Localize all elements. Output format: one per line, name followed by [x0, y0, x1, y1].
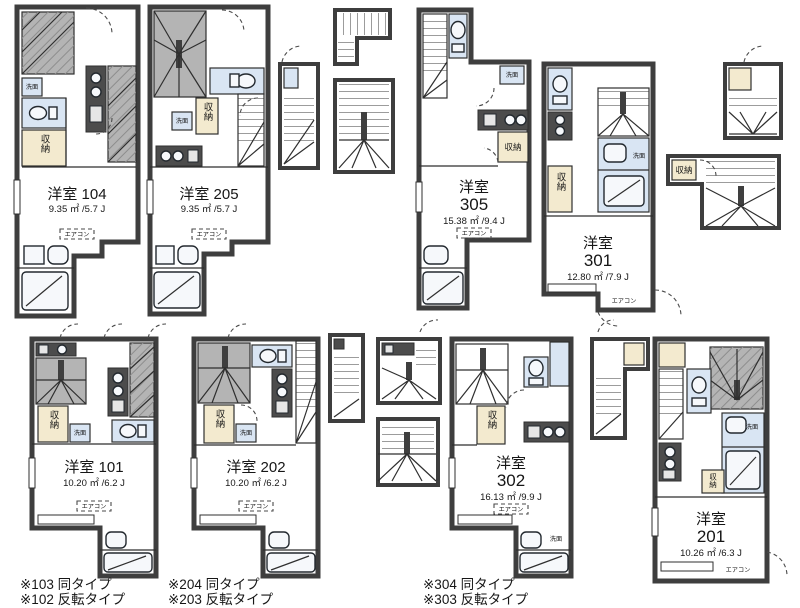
closet: 収納 [22, 130, 66, 166]
toilet [22, 98, 66, 128]
washer-icon [156, 246, 174, 264]
washstand-label: 洗面 [240, 429, 252, 437]
basin-icon [424, 246, 448, 264]
note-line: ※303 反転タイプ [423, 592, 529, 607]
svg-text:エアコン: エアコン [244, 504, 269, 511]
sink-icon [90, 106, 102, 122]
toilet [449, 14, 467, 58]
closet-label: 収納 [708, 473, 717, 490]
kitchen [548, 112, 572, 140]
staircase [423, 14, 447, 98]
washstand-label: 洗面 [26, 83, 38, 91]
basin-icon [48, 246, 68, 264]
room-number: 201 [697, 527, 725, 546]
washstand: 洗面 [236, 424, 256, 442]
staircase [22, 12, 74, 74]
toilet [252, 345, 292, 367]
closet: 収納 [204, 405, 234, 443]
staircase [238, 94, 264, 166]
room-label: 洋室 104 9.35 ㎡ /5.7 J [47, 186, 106, 215]
balcony-sill [38, 515, 94, 524]
stair-fragment [592, 339, 648, 438]
bath-unit: 洗面 [598, 138, 649, 212]
bathtub [104, 553, 152, 572]
svg-text:エアコン: エアコン [65, 232, 90, 239]
basin-icon [106, 532, 126, 548]
stair-fragment: 収納 [668, 156, 779, 228]
unit-301: 洗面 収納 洋室 301 12.80 ㎡ /7.9 J エアコン [544, 64, 653, 310]
stair-fragment [330, 335, 363, 421]
burner-icon [555, 427, 565, 437]
washstand: 洗面 [500, 66, 524, 84]
window [416, 182, 422, 212]
kitchen [478, 110, 528, 130]
svg-text:エアコン: エアコン [612, 298, 637, 305]
closet: 収納 [498, 132, 528, 162]
room-label: 洋室 101 10.20 ㎡ /6.2 J [63, 459, 125, 489]
svg-text:エアコン: エアコン [462, 231, 487, 238]
room-title: 洋室 [696, 511, 726, 528]
sink-icon [528, 426, 540, 438]
room-area: 10.26 ㎡ /6.3 J [680, 548, 742, 559]
room-area: 15.38 ㎡ /9.4 J [443, 216, 505, 227]
toilet-bowl-icon [260, 350, 276, 363]
bathtub [267, 553, 315, 572]
toilet [112, 420, 154, 442]
washstand-label: 洗面 [746, 423, 758, 431]
closet [659, 343, 685, 367]
burner-icon [505, 115, 515, 125]
stair-fragment [378, 339, 440, 403]
washstand: 洗面 [22, 78, 42, 96]
stair-fragment [335, 10, 390, 64]
unit-305: 洗面 収納 洋室 305 15.38 ㎡ /9.4 J エアコン [416, 10, 529, 308]
washstand-label: 洗面 [176, 117, 188, 125]
burner-icon [556, 116, 565, 125]
room-title: 洋室 [583, 235, 613, 252]
aircon-label: エアコン [726, 567, 751, 574]
aircon-label: エアコン [612, 298, 637, 305]
room-title: 洋室 104 [47, 186, 106, 203]
svg-text:エアコン: エアコン [82, 504, 107, 511]
washstand-label: 洗面 [506, 71, 518, 79]
washstand [284, 68, 298, 88]
burner-icon [277, 374, 287, 384]
toilet-bowl-icon [30, 107, 47, 120]
washstand-label: 洗面 [74, 429, 86, 437]
closet-label: 収納 [214, 408, 226, 429]
window [14, 180, 20, 214]
washstand-label: 洗面 [633, 152, 645, 160]
staircase [659, 369, 683, 439]
closet-label: 収納 [39, 133, 51, 154]
svg-text:エアコン: エアコン [726, 567, 751, 574]
closet-label: 収納 [202, 101, 214, 122]
room-title: 洋室 205 [179, 186, 238, 203]
toilet [524, 357, 548, 387]
sink-icon [484, 114, 496, 126]
burner-icon [516, 115, 526, 125]
closet-label: 収納 [555, 171, 567, 192]
toilet [548, 68, 572, 110]
kitchen [524, 422, 569, 442]
washstand-label: 洗面 [550, 535, 562, 543]
window [29, 458, 35, 488]
closet: 収納 [672, 160, 696, 180]
room-area: 10.20 ㎡ /6.2 J [63, 478, 125, 489]
window [652, 508, 658, 536]
kitchen [108, 368, 128, 416]
closet-label: 収納 [675, 165, 692, 175]
closet-label: 収納 [48, 409, 60, 430]
sink-icon [276, 401, 288, 413]
sink-icon [112, 400, 124, 412]
unit-302: 収納 洋室 302 16.13 ㎡ /9.9 J エアコン 洗面 [449, 339, 571, 576]
room-title: 洋室 101 [64, 459, 123, 476]
unit-201: 洗面 収納 洋室 201 10.26 ㎡ /6.3 J エアコン [652, 339, 767, 581]
basin-icon [178, 246, 198, 264]
burner-icon [91, 87, 101, 97]
toilet-bowl-icon [120, 425, 136, 438]
room-label: 洋室 205 9.35 ㎡ /5.7 J [179, 186, 238, 215]
balcony-sill [200, 515, 256, 524]
balcony-sill [661, 562, 713, 571]
kitchen [86, 66, 106, 132]
burner-icon [113, 373, 123, 383]
room-area: 9.35 ㎡ /5.7 J [181, 204, 238, 215]
note-line: ※103 同タイプ [20, 577, 112, 592]
toilet [210, 68, 264, 94]
room-title: 洋室 [496, 455, 526, 472]
room-area: 10.20 ㎡ /6.2 J [225, 478, 287, 489]
kitchen [272, 369, 292, 417]
room-area: 9.35 ㎡ /5.7 J [49, 204, 106, 215]
stair-fragment [335, 80, 393, 172]
washstand: 洗面 [70, 424, 90, 442]
room-label: 洋室 202 10.20 ㎡ /6.2 J [225, 459, 287, 489]
kitchen [382, 343, 414, 355]
room-title: 洋室 202 [226, 459, 285, 476]
room-number: 305 [460, 195, 488, 214]
closet: 収納 [38, 406, 68, 442]
shower-room [550, 342, 569, 386]
bathtub [604, 176, 644, 206]
closet: 収納 [702, 470, 724, 493]
unit-101: 収納 洗面 洋室 101 10.20 ㎡ /6.2 J エアコン [29, 339, 156, 576]
room-number: 301 [584, 251, 612, 270]
bathtub [154, 272, 200, 308]
bathtub [520, 553, 568, 572]
unit-205: 収納 洗面 洋室 205 9.35 ㎡ /5.7 J エアコン [147, 7, 268, 314]
stair-fragment [280, 64, 318, 168]
staircase [130, 343, 154, 417]
toilet-bowl-icon [451, 22, 465, 39]
burner-icon [665, 459, 675, 469]
unit-202: 収納 洗面 洋室 202 10.20 ㎡ /6.2 J エアコン [191, 339, 318, 576]
burner-icon [58, 345, 67, 354]
burner-icon [173, 151, 183, 161]
toilet-bowl-icon [553, 76, 567, 92]
note-line: ※102 反転タイプ [20, 592, 126, 607]
balcony-sill [548, 284, 596, 292]
burner-icon [665, 447, 675, 457]
window [449, 458, 455, 488]
stair-fragment [725, 64, 781, 138]
staircase [198, 343, 250, 403]
sink-icon [385, 345, 393, 353]
staircase [710, 347, 763, 409]
sink-icon [39, 345, 48, 354]
floorplan-canvas: 洗面 収納 洋室 104 9.35 ㎡ /5.7 J エアコン [0, 0, 800, 608]
svg-text:エアコン: エアコン [499, 507, 524, 514]
burner-icon [543, 427, 553, 437]
burner-icon [161, 151, 171, 161]
window [191, 458, 197, 488]
basin-icon [726, 417, 746, 433]
room-area: 16.13 ㎡ /9.9 J [480, 492, 542, 503]
toilet-bowl-icon [529, 360, 543, 376]
balcony-sill [458, 515, 512, 524]
burner-icon [277, 387, 287, 397]
closet: 収納 [477, 406, 505, 444]
window [147, 180, 153, 214]
washstand: 洗面 [172, 112, 192, 130]
closet [729, 68, 751, 90]
stair-fragment [378, 419, 438, 485]
closet: 収納 [548, 166, 572, 212]
note-line: ※204 同タイプ [168, 577, 260, 592]
staircase [598, 88, 649, 136]
footnotes: ※103 同タイプ ※102 反転タイプ ※204 同タイプ ※203 反転タイ… [20, 577, 529, 607]
closet-label: 収納 [486, 409, 498, 430]
svg-text:エアコン: エアコン [197, 232, 222, 239]
note-line: ※203 反転タイプ [168, 592, 274, 607]
staircase [36, 358, 86, 404]
unit-104: 洗面 収納 洋室 104 9.35 ㎡ /5.7 J エアコン [14, 7, 138, 316]
room-title: 洋室 [459, 179, 489, 196]
burner-icon [556, 127, 565, 136]
burner-icon [113, 386, 123, 396]
floor-plan: 洗面 収納 洋室 104 9.35 ㎡ /5.7 J エアコン [0, 0, 800, 608]
basin-icon [269, 532, 289, 548]
washer-icon [24, 246, 44, 264]
kitchen [156, 146, 202, 166]
bathtub [22, 272, 68, 310]
bathtub [423, 272, 463, 304]
bath-unit: 洗面 [722, 413, 764, 493]
note-line: ※304 同タイプ [423, 577, 515, 592]
basin-icon [604, 144, 626, 162]
toilet [687, 369, 711, 413]
room-area: 12.80 ㎡ /7.9 J [567, 272, 629, 283]
staircase [108, 66, 136, 162]
kitchen [659, 443, 681, 481]
kitchen [36, 343, 76, 356]
bathtub [726, 451, 760, 489]
toilet-bowl-icon [692, 377, 706, 393]
closet-label: 収納 [504, 142, 521, 152]
sink-icon [663, 470, 675, 479]
closet [624, 343, 644, 365]
staircase [296, 341, 316, 443]
room-number: 302 [497, 471, 525, 490]
staircase [154, 11, 206, 97]
closet: 収納 [196, 98, 218, 134]
basin-icon [521, 532, 541, 548]
burner-icon [91, 73, 101, 83]
sink-icon [188, 150, 198, 162]
staircase [456, 344, 508, 404]
